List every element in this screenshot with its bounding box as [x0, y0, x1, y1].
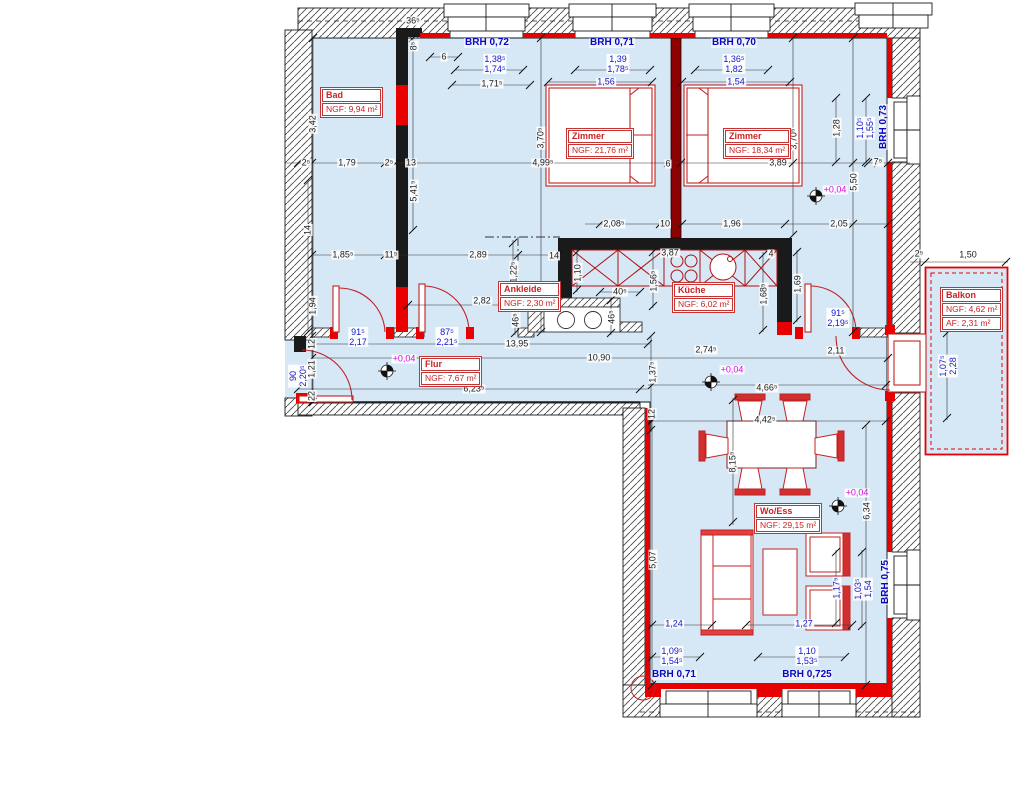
- sink-icon: [710, 254, 736, 280]
- sofa: [701, 530, 753, 635]
- coffee-table: [763, 549, 797, 615]
- party-wall: [671, 38, 681, 238]
- window-top-1: [444, 4, 529, 31]
- armchair: [806, 586, 850, 630]
- window-top-4: [855, 3, 932, 28]
- window-bottom-2: [782, 691, 856, 717]
- armchair: [806, 533, 850, 576]
- floor-plan: 36⁵8⁵61,71⁵3,422⁵1,792⁵135,41⁵3,70⁵4,99⁵…: [0, 0, 1011, 786]
- bed-2: [684, 85, 802, 186]
- bed-1: [546, 85, 655, 186]
- window-right-1: [894, 96, 920, 164]
- window-top-3: [689, 4, 774, 31]
- dining-table: [727, 421, 816, 468]
- window-right-2: [894, 550, 920, 620]
- window-bottom-1: [660, 691, 757, 717]
- window-top-2: [569, 4, 656, 31]
- floor-plan-drawing: [0, 0, 1011, 786]
